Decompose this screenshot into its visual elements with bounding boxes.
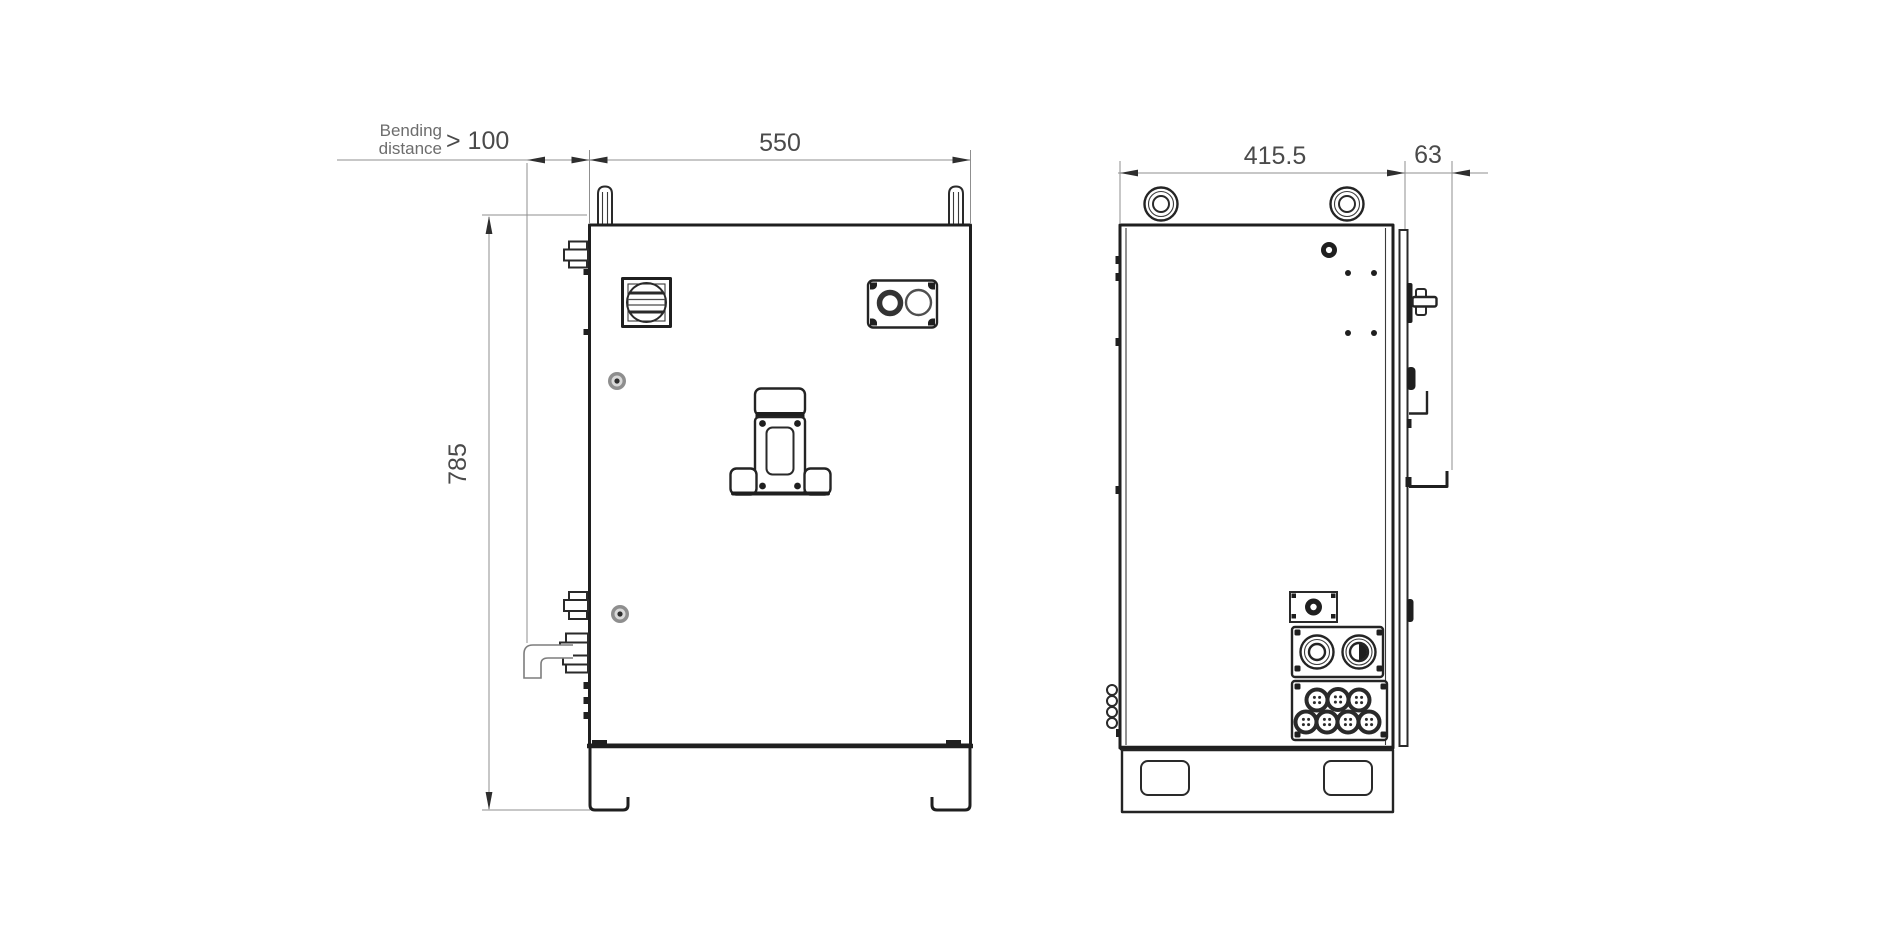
- cabinet-dimension-drawing: Bending distance > 100 550 785 415.5 63: [0, 0, 1890, 928]
- door-latch-bump: [1407, 599, 1414, 622]
- dim-front-width: 550: [759, 129, 801, 157]
- dim-front-height: 785: [444, 443, 472, 485]
- edge-stud: [1406, 477, 1412, 487]
- bending-note-line1: Bending: [380, 121, 442, 140]
- rotary-switch: [623, 279, 671, 327]
- button-plate: [868, 281, 937, 328]
- door-pivot-lower: [611, 605, 629, 623]
- front-view: [524, 187, 973, 811]
- hinge-knuckle: [1407, 367, 1416, 390]
- rear-stud: [1116, 273, 1121, 281]
- vent-hole: [1345, 330, 1351, 336]
- top-port: [1321, 242, 1337, 258]
- edge-stud: [584, 697, 590, 704]
- foot-right: [932, 748, 970, 810]
- front-door-edge: [1400, 230, 1408, 746]
- cable-gland-top: [564, 242, 588, 268]
- bending-note-line2: distance: [379, 139, 442, 158]
- connector-panel-round: [1292, 627, 1383, 677]
- lifting-ring-right: [1331, 188, 1364, 221]
- rear-stud: [1116, 256, 1121, 264]
- edge-stud: [584, 269, 590, 275]
- vent-hole: [1345, 270, 1351, 276]
- lifting-ring-left: [1145, 188, 1178, 221]
- edge-stud: [584, 712, 590, 719]
- base-notch-left: [592, 740, 607, 745]
- edge-stud: [1407, 419, 1412, 428]
- lifting-pin-left: [598, 187, 612, 227]
- latch-step: [1409, 391, 1427, 414]
- technical-drawing-canvas: Bending distance > 100 550 785 415.5 63: [0, 0, 1890, 928]
- rotary-switch-knob-profile: [1407, 283, 1437, 323]
- lifting-pin-right: [949, 187, 963, 227]
- foot-left: [590, 748, 628, 810]
- edge-stud: [584, 329, 590, 335]
- cable-gland-small: [564, 592, 588, 619]
- handle-wing-left: [731, 469, 757, 495]
- dim-bending-value: > 100: [446, 127, 509, 155]
- door-pivot-upper: [608, 372, 626, 390]
- handle-grip-profile: [1409, 471, 1447, 487]
- base-notch-right: [946, 740, 961, 745]
- vent-hole: [1371, 330, 1377, 336]
- connector-flange-small: [1290, 592, 1337, 622]
- rear-stud: [1116, 486, 1121, 494]
- edge-stud: [584, 682, 590, 689]
- base-plinth: [1122, 750, 1393, 812]
- dim-side-protrusion: 63: [1414, 141, 1442, 169]
- dim-side-depth: 415.5: [1244, 142, 1307, 170]
- vent-hole: [1371, 270, 1377, 276]
- handle-wing-right: [805, 469, 831, 495]
- rear-stud: [1116, 338, 1121, 346]
- side-view: [1107, 188, 1447, 813]
- connector-panel-multipin: [1292, 681, 1387, 740]
